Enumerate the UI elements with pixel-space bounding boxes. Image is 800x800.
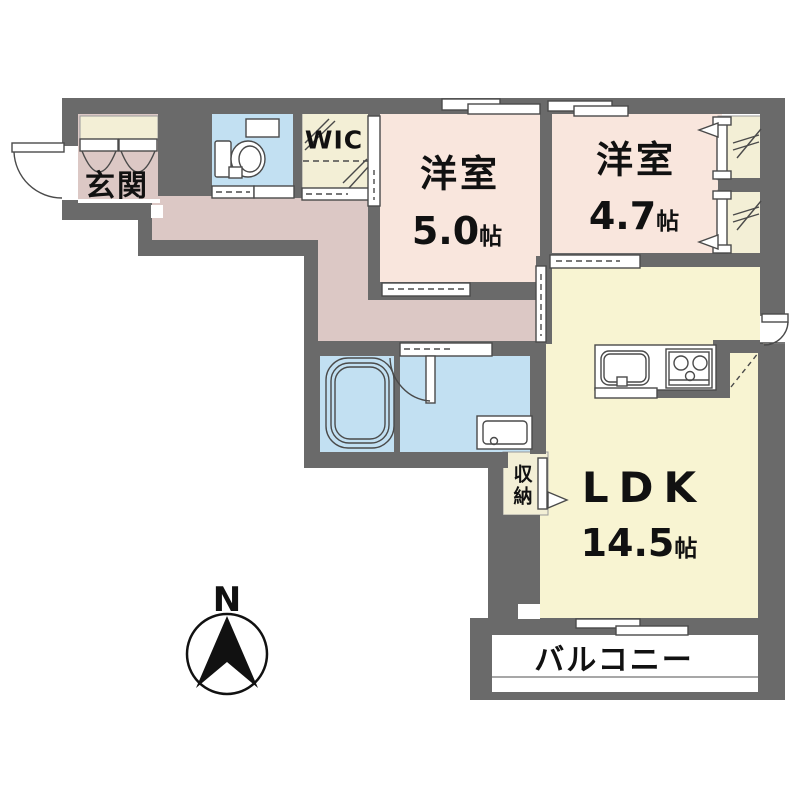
hall-connector-floor xyxy=(316,238,374,302)
wall-closet-divider xyxy=(718,178,764,192)
toilet-base xyxy=(229,167,242,178)
wall-connector-west xyxy=(304,240,318,344)
storage-door xyxy=(538,458,547,509)
bedroom2-size-unit: 帖 xyxy=(656,209,679,235)
ldk-size: 14.5帖 xyxy=(581,524,698,562)
bedroom1-size: 5.0帖 xyxy=(412,212,502,250)
wall-balcony-bottom xyxy=(470,692,785,700)
wall-right-lower xyxy=(758,344,785,700)
ldk-size-unit: 帖 xyxy=(674,536,697,562)
shoe-cabinet xyxy=(80,116,158,140)
kitchen-faucet xyxy=(617,377,627,386)
wall-bath-divider xyxy=(394,356,400,454)
bath-swing-door-leaf xyxy=(426,356,435,403)
wall-bedroom-divider xyxy=(540,98,552,258)
bedroom2-window-b xyxy=(574,106,628,116)
bedroom1-size-value: 5.0 xyxy=(412,209,479,253)
service-door-leaf xyxy=(762,314,788,322)
bedroom2-size-value: 4.7 xyxy=(589,194,656,238)
ldk-name: LDK xyxy=(582,467,706,509)
wall-hall-south xyxy=(138,240,308,256)
bedroom1-size-unit: 帖 xyxy=(479,224,502,250)
step-notch xyxy=(151,205,163,218)
closet-upper-cap-bottom xyxy=(713,171,731,179)
bedroom1-door xyxy=(382,283,470,296)
ldk-floor xyxy=(540,265,765,622)
kitchen-counter-lip xyxy=(595,388,657,398)
bedroom2-door xyxy=(550,255,640,268)
wall-bath-south xyxy=(304,452,508,468)
wall-balcony-left xyxy=(470,618,492,700)
wall-right-upper xyxy=(760,98,785,314)
hall-lower-floor xyxy=(316,296,540,346)
compass xyxy=(187,614,267,694)
entrance-door-opening xyxy=(62,146,78,200)
wall-fridge-nook-top xyxy=(713,340,763,353)
balcony-label: バルコニー xyxy=(534,646,693,676)
shoe-cabinet-door-left xyxy=(80,139,118,151)
toilet-opening xyxy=(254,186,294,198)
entrance-door-arc xyxy=(14,152,62,198)
floorplan-drawing xyxy=(0,0,800,800)
bedroom2-size: 4.7帖 xyxy=(589,197,679,235)
wall-shaft xyxy=(158,110,212,196)
storage-label: 収納 xyxy=(512,464,531,508)
bedroom2-name: 洋室 xyxy=(596,142,676,179)
compass-north-label: N xyxy=(213,583,241,617)
entrance-door-leaf xyxy=(12,143,64,152)
ldk-size-value: 14.5 xyxy=(581,521,675,565)
wall-left-upper xyxy=(62,98,78,148)
ldk-wall-notch xyxy=(518,604,540,619)
entrance-label: 玄関 xyxy=(85,172,149,202)
wic-label: WIC xyxy=(305,128,363,153)
toilet-shelf xyxy=(246,119,279,137)
bedroom1-floor xyxy=(378,112,542,286)
wall-toilet-wic xyxy=(293,110,302,198)
wall-bath-west xyxy=(304,341,320,468)
bedroom1-name: 洋室 xyxy=(420,156,500,193)
wall-storage-west xyxy=(488,452,503,515)
wic-door xyxy=(302,188,369,200)
balcony-window-b xyxy=(616,626,688,635)
shoe-cabinet-door-right xyxy=(119,139,157,151)
closet-lower-cap-top xyxy=(713,191,731,199)
bedroom1-window-b xyxy=(468,104,540,114)
floorplan: 玄関 WIC 洋室 5.0帖 洋室 4.7帖 LDK 14.5帖 収納 バルコニ… xyxy=(0,0,800,800)
